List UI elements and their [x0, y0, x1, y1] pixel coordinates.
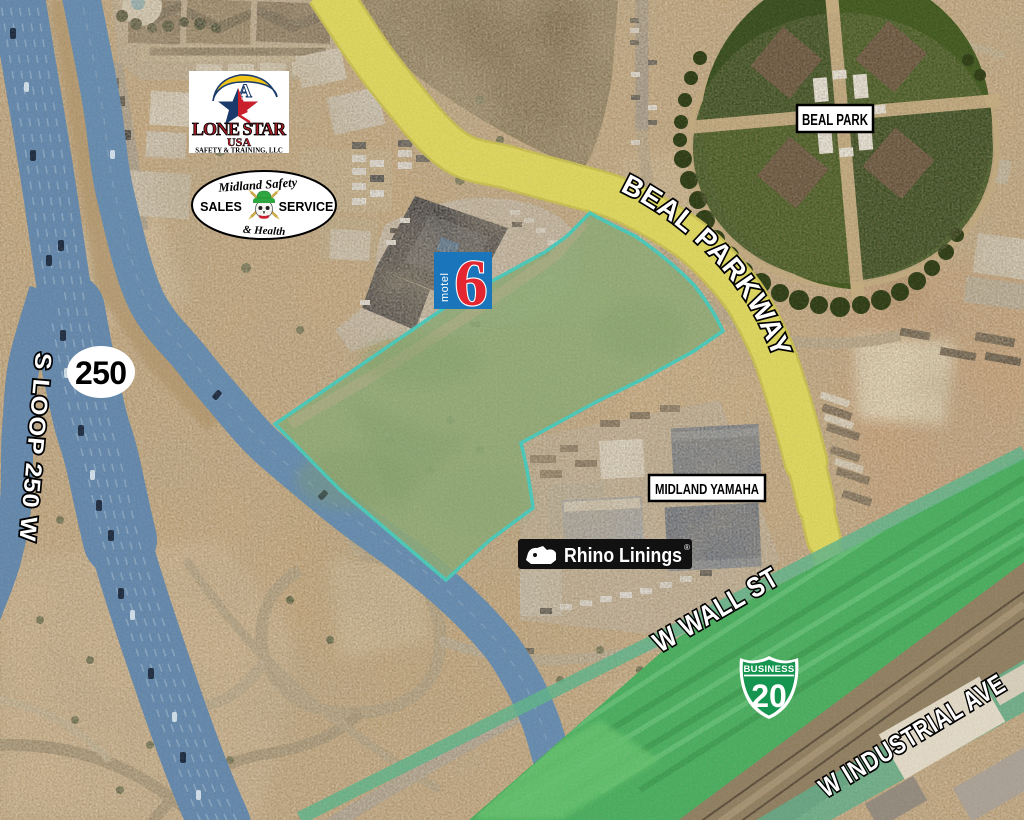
svg-text:SERVICE: SERVICE [279, 200, 334, 214]
svg-text:motel: motel [439, 273, 451, 302]
svg-text:®: ® [684, 543, 690, 552]
svg-text:20: 20 [751, 678, 787, 714]
svg-text:BEAL PARK: BEAL PARK [802, 112, 868, 129]
svg-text:BUSINESS: BUSINESS [744, 664, 795, 675]
svg-text:6: 6 [455, 247, 488, 320]
svg-text:250: 250 [75, 355, 127, 391]
svg-text:SAFETY & TRAINING, LLC: SAFETY & TRAINING, LLC [195, 148, 283, 155]
svg-text:& Health: & Health [243, 224, 286, 238]
svg-text:Rhino Linings: Rhino Linings [564, 545, 682, 567]
svg-text:MIDLAND YAMAHA: MIDLAND YAMAHA [655, 481, 759, 498]
svg-text:SALES: SALES [200, 200, 242, 214]
